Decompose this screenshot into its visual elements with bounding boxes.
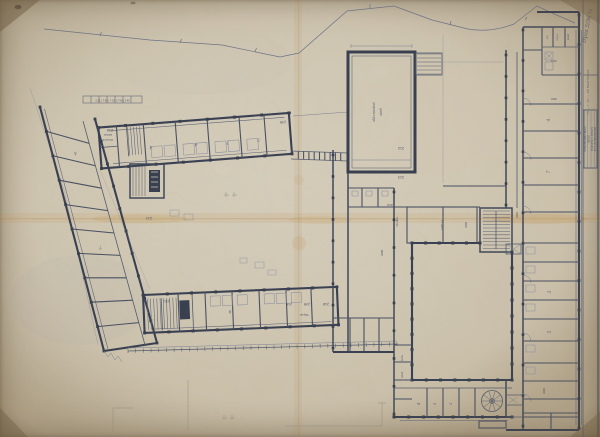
scan-vignette — [0, 0, 600, 437]
scanned-floor-plan-sheet: 3·25 | 7·50 | 7·50 | 7·50 | 2·45 — [0, 0, 600, 437]
floor-plan-svg: 3·25 | 7·50 | 7·50 | 7·50 | 2·45 — [0, 0, 600, 437]
